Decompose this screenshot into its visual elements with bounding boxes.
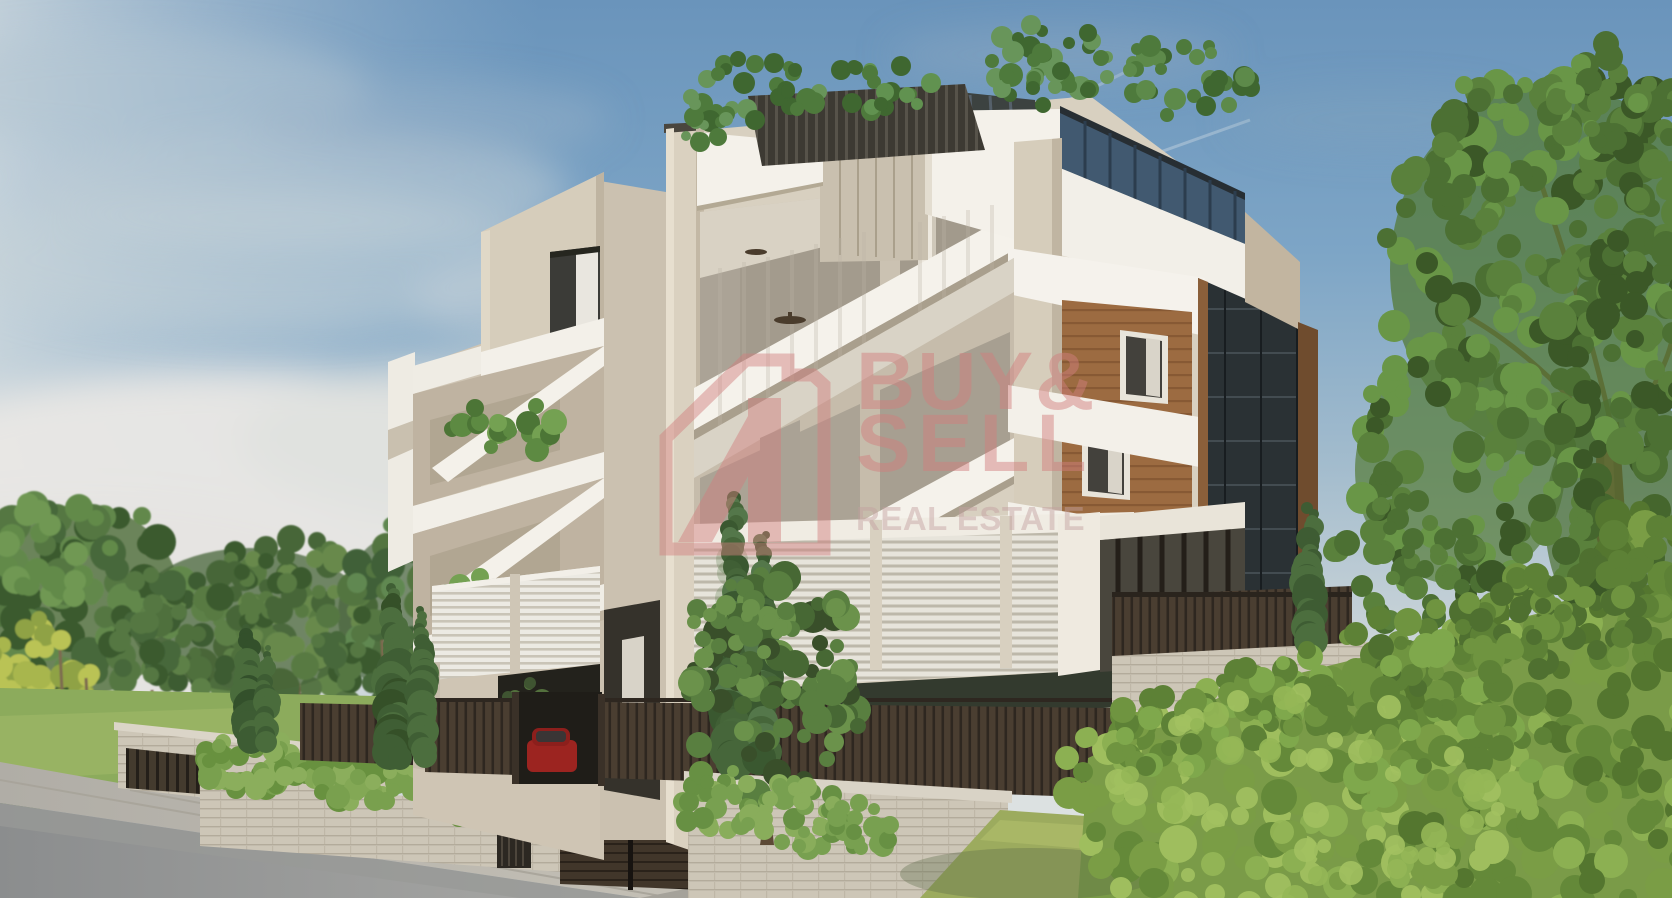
svg-text:SELL: SELL: [856, 398, 1094, 489]
svg-text:REAL ESTATE: REAL ESTATE: [856, 500, 1085, 537]
